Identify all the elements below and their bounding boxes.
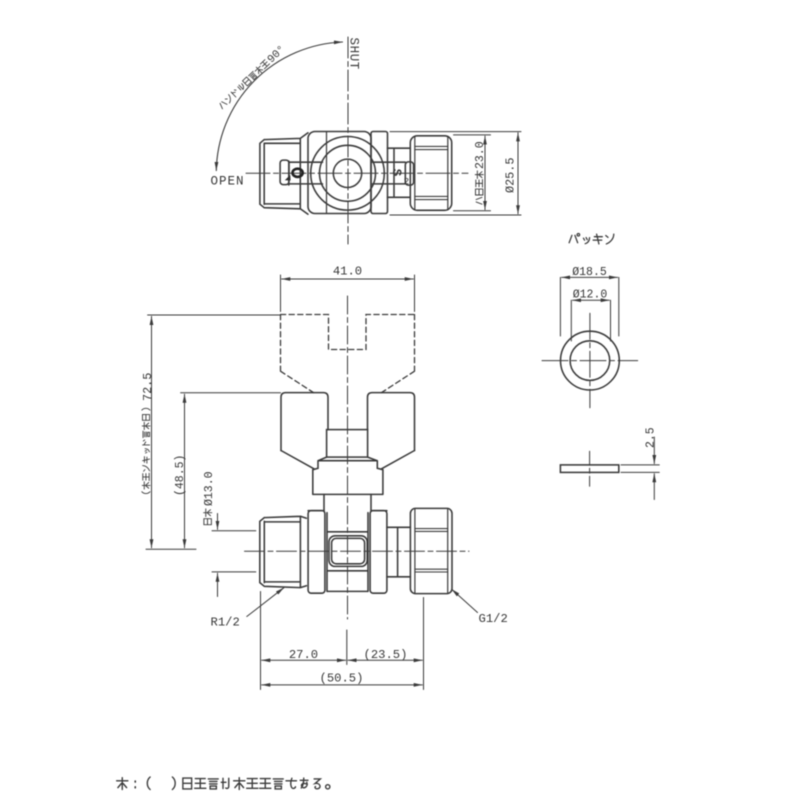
svg-text:90°: 90°	[266, 44, 289, 66]
svg-text:(50.5): (50.5)	[320, 671, 364, 685]
svg-text:(48.5): (48.5)	[174, 455, 187, 496]
svg-text:72.5: 72.5	[141, 373, 155, 401]
svg-text:SHUT: SHUT	[347, 38, 361, 70]
svg-text:Ø12.0: Ø12.0	[573, 289, 608, 302]
svg-text:Ø25.5: Ø25.5	[504, 158, 518, 193]
svg-text:R1/2: R1/2	[211, 616, 240, 630]
svg-text:OPEN: OPEN	[211, 175, 245, 189]
svg-text:2: 2	[404, 176, 410, 187]
svg-text:41.0: 41.0	[333, 265, 362, 279]
svg-text:2.5: 2.5	[645, 427, 658, 448]
svg-text:23.0: 23.0	[474, 141, 487, 169]
svg-text:S: S	[389, 169, 403, 177]
svg-text:Ø18.5: Ø18.5	[572, 266, 607, 279]
svg-text:G1/2: G1/2	[479, 612, 508, 626]
svg-text:(23.5): (23.5)	[364, 648, 408, 662]
svg-text:27.0: 27.0	[289, 648, 318, 662]
svg-text:Ø13.0: Ø13.0	[203, 471, 216, 506]
